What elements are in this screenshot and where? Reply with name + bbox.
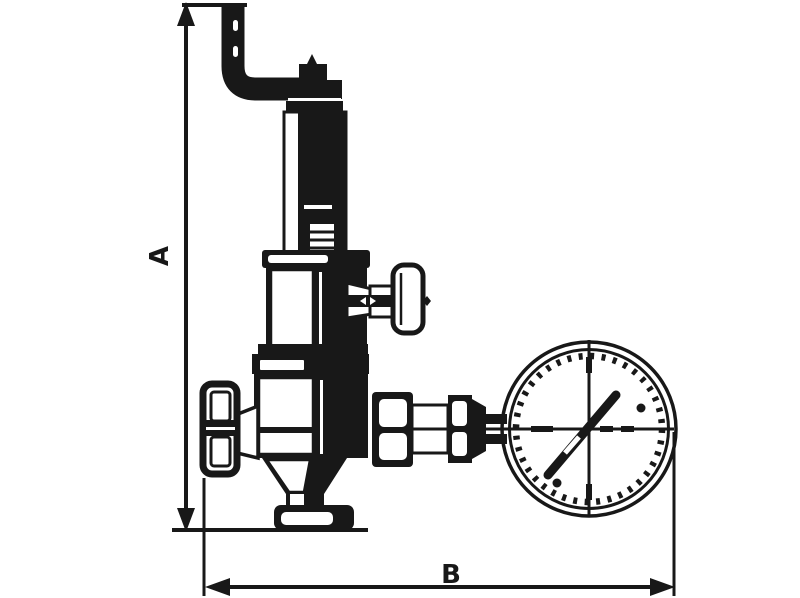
gauge-needle — [548, 395, 616, 475]
thread-highlight — [304, 205, 332, 209]
taper-piece — [472, 399, 486, 459]
needle-tail-pin — [553, 479, 562, 488]
drawing-canvas: A B — [0, 0, 800, 598]
bottom-outlet — [262, 458, 354, 530]
inlet — [203, 384, 258, 474]
crosshair-dash — [586, 484, 592, 500]
centerline-dash — [531, 426, 553, 432]
body-face — [259, 378, 313, 454]
dim-b-arrow-left-icon — [205, 578, 230, 596]
dim-b-label: B — [441, 560, 461, 590]
gauge-nut-band — [452, 401, 467, 426]
spindle-cap-block — [286, 80, 342, 99]
spindle-cap — [286, 54, 343, 113]
centerline-dash — [600, 426, 613, 432]
pipe-highlight — [233, 46, 238, 57]
valve-technical-drawing: A B — [0, 0, 800, 598]
dim-b-arrow-right-icon — [650, 578, 675, 596]
centerline-dash — [621, 426, 634, 432]
funnel-face — [267, 460, 310, 492]
crosshair-dash — [586, 357, 592, 373]
spindle-top-nut — [299, 64, 327, 82]
bonnet-face — [271, 270, 313, 346]
body-hairline — [320, 380, 323, 454]
inlet-cap-slit — [206, 427, 235, 430]
inlet-cap-band — [211, 392, 230, 421]
bonnet-hairline — [319, 272, 322, 344]
body-flange-highlight — [259, 359, 305, 371]
union-nut-band — [379, 433, 407, 460]
body-centerline — [259, 427, 313, 433]
dim-a-label: A — [145, 246, 175, 266]
bonnet-flange-highlight — [268, 255, 328, 263]
valve-body — [252, 344, 369, 458]
adjusting-spindle — [284, 112, 346, 260]
bottom-flange-highlight — [281, 512, 333, 525]
union-nut-band — [379, 399, 407, 427]
cap-separation — [288, 98, 341, 101]
gauge-stop-pin — [637, 404, 646, 413]
pipe-highlight — [233, 20, 238, 31]
tap-handle — [393, 265, 423, 333]
inlet-cap-band — [211, 437, 230, 466]
gauge-nut-band — [452, 432, 467, 456]
